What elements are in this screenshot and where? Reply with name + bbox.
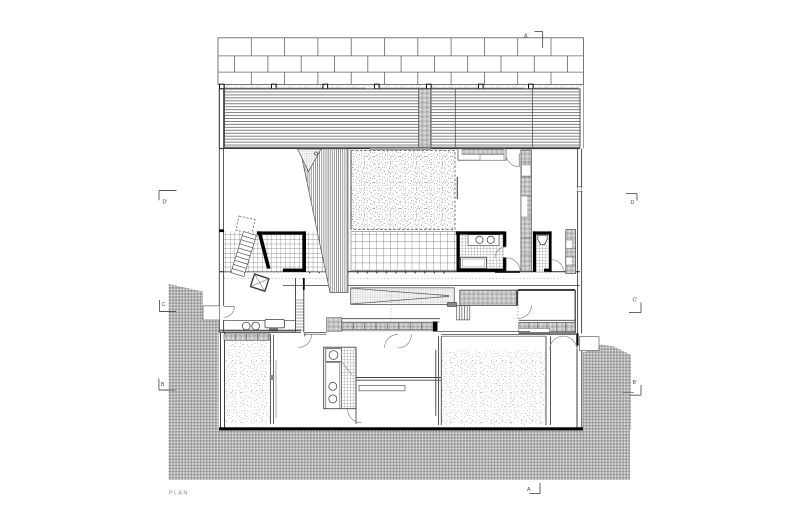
svg-text:C: C <box>162 302 166 308</box>
svg-text:A: A <box>527 487 531 493</box>
svg-text:C′: C′ <box>633 298 638 304</box>
svg-text:B: B <box>161 382 165 388</box>
svg-text:PLAN: PLAN <box>169 491 189 497</box>
svg-text:D: D <box>631 200 635 206</box>
svg-text:B′: B′ <box>633 380 637 386</box>
svg-text:D′: D′ <box>163 200 168 206</box>
svg-text:A′: A′ <box>524 34 528 40</box>
